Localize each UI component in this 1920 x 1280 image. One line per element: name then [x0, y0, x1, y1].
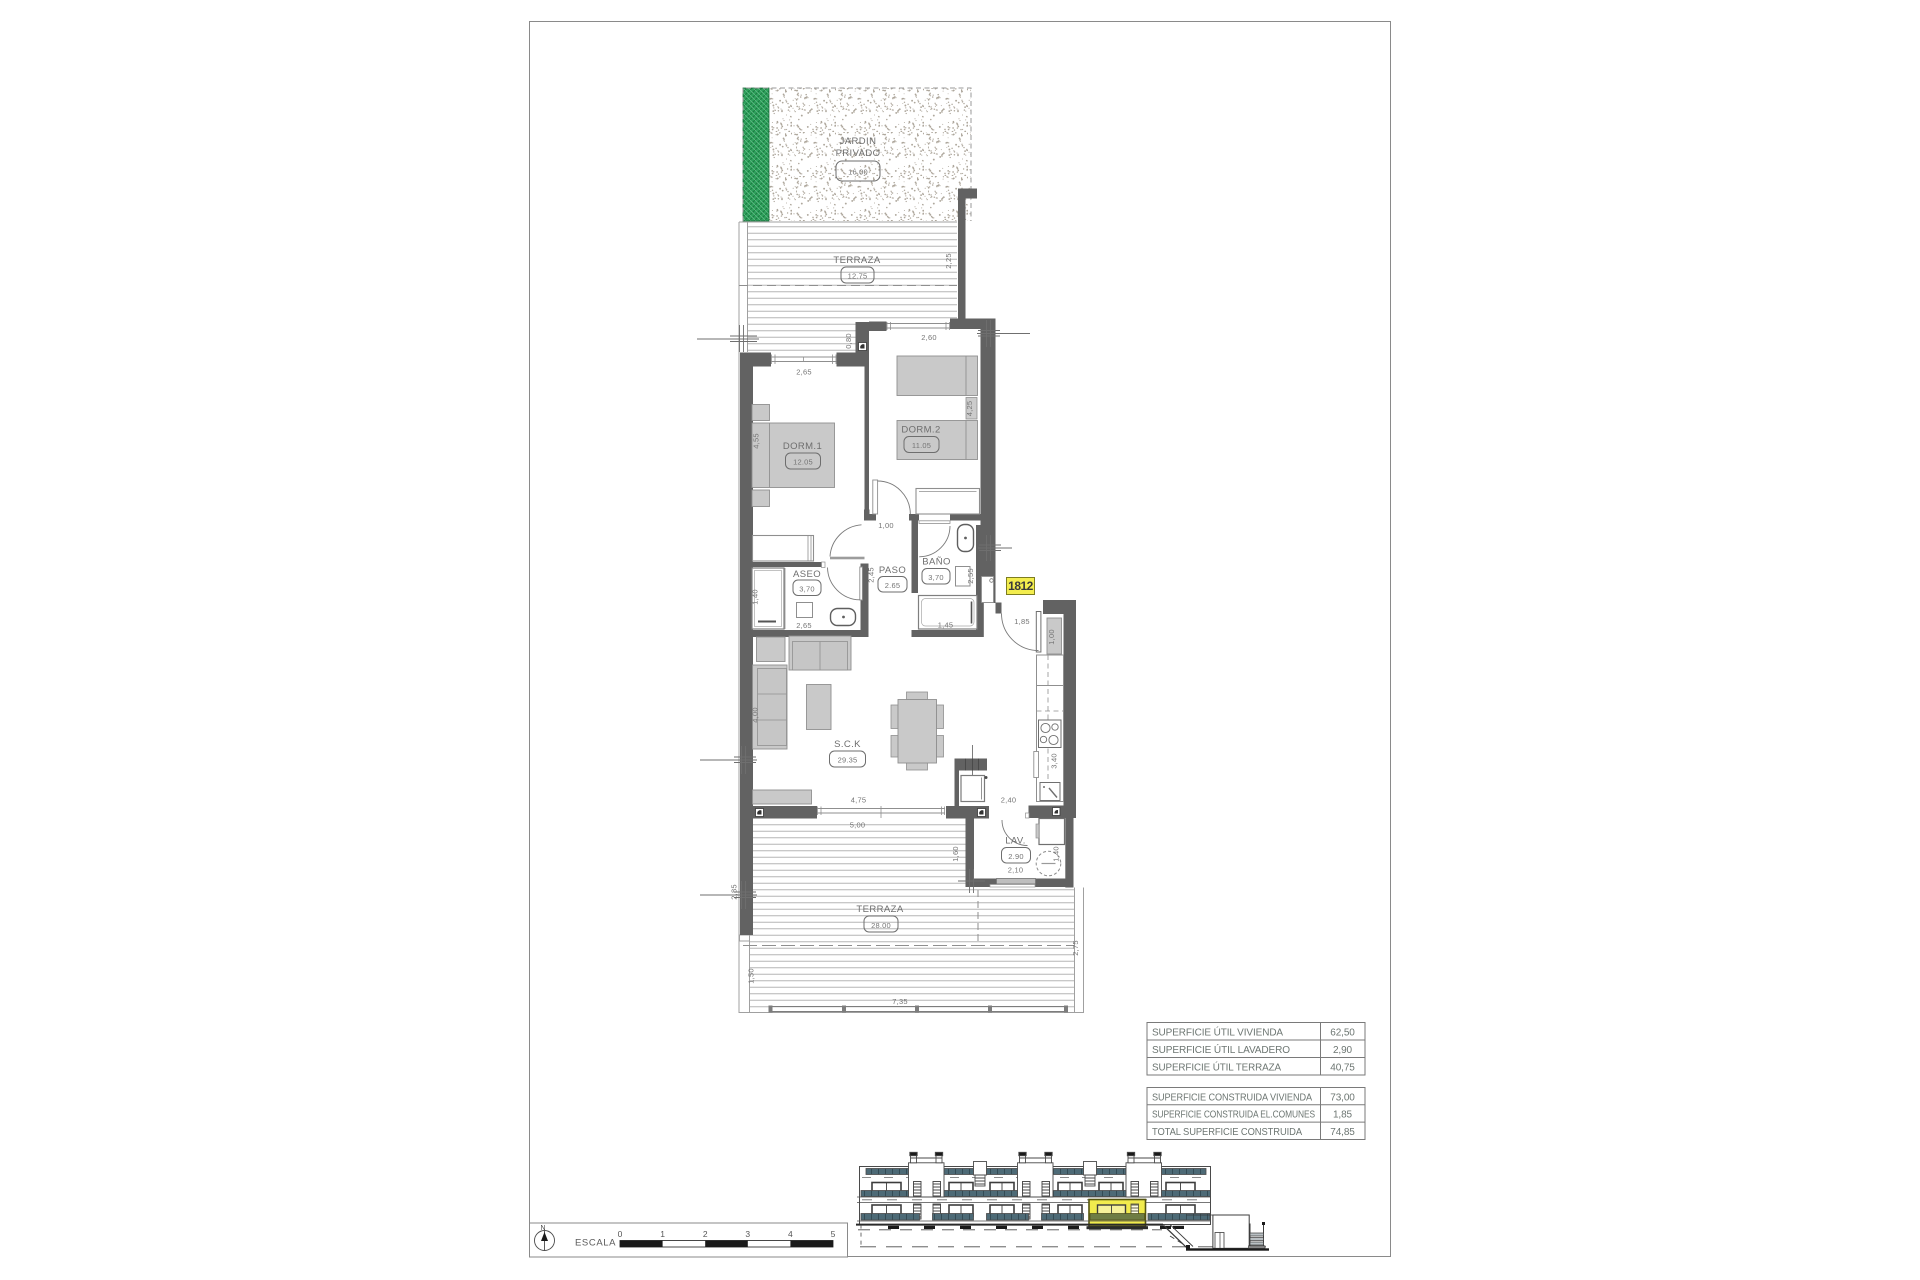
- svg-text:2,90: 2,90: [1333, 1045, 1353, 1056]
- svg-text:1,45: 1,45: [938, 621, 953, 630]
- svg-text:PRIVADO: PRIVADO: [836, 148, 881, 159]
- svg-text:2,25: 2,25: [944, 253, 953, 268]
- svg-text:3: 3: [745, 1229, 750, 1239]
- svg-text:TOTAL SUPERFICIE CONSTRUIDA: TOTAL SUPERFICIE CONSTRUIDA: [1152, 1127, 1302, 1138]
- svg-text:DORM.1: DORM.1: [783, 441, 822, 452]
- svg-text:1,85: 1,85: [1014, 617, 1029, 626]
- svg-text:2,55: 2,55: [966, 568, 975, 583]
- svg-text:SUPERFICIE ÚTIL VIVIENDA: SUPERFICIE ÚTIL VIVIENDA: [1152, 1026, 1283, 1039]
- svg-text:PASO: PASO: [879, 565, 906, 576]
- svg-text:2: 2: [703, 1229, 708, 1239]
- svg-text:4,25: 4,25: [965, 401, 974, 416]
- svg-text:1,40: 1,40: [751, 589, 760, 604]
- svg-text:28.00: 28.00: [871, 921, 891, 930]
- svg-text:1,40: 1,40: [1052, 846, 1061, 861]
- svg-text:S.C.K: S.C.K: [834, 739, 861, 750]
- svg-text:16,00: 16,00: [848, 168, 868, 177]
- svg-text:2,65: 2,65: [796, 621, 811, 630]
- svg-text:2,10: 2,10: [1008, 866, 1023, 875]
- svg-text:2,65: 2,65: [796, 368, 811, 377]
- svg-text:DORM.2: DORM.2: [901, 425, 940, 436]
- svg-text:3,40: 3,40: [1050, 753, 1059, 768]
- svg-text:SUPERFICIE ÚTIL TERRAZA: SUPERFICIE ÚTIL TERRAZA: [1152, 1061, 1281, 1074]
- svg-text:ASEO: ASEO: [793, 569, 821, 580]
- svg-text:BAÑO: BAÑO: [922, 557, 951, 568]
- svg-text:4,00: 4,00: [751, 707, 760, 722]
- svg-text:2,45: 2,45: [867, 567, 876, 582]
- svg-text:3,70: 3,70: [799, 585, 814, 594]
- svg-text:1,50: 1,50: [747, 968, 756, 983]
- svg-text:0,80: 0,80: [844, 333, 853, 348]
- svg-text:2.65: 2.65: [885, 581, 900, 590]
- svg-text:2,75: 2,75: [1071, 940, 1080, 955]
- svg-text:TERRAZA: TERRAZA: [856, 904, 903, 915]
- svg-text:JARDIN: JARDIN: [840, 136, 877, 147]
- svg-text:12.75: 12.75: [848, 272, 868, 281]
- svg-text:62,50: 62,50: [1330, 1028, 1355, 1039]
- svg-text:3,70: 3,70: [928, 573, 943, 582]
- svg-text:12.05: 12.05: [793, 458, 813, 467]
- svg-text:7,35: 7,35: [892, 997, 907, 1006]
- svg-text:2,40: 2,40: [1001, 796, 1016, 805]
- svg-text:2.90: 2.90: [1008, 852, 1023, 861]
- svg-text:40,75: 40,75: [1330, 1063, 1355, 1074]
- svg-text:73,00: 73,00: [1330, 1092, 1355, 1103]
- svg-text:1,00: 1,00: [1047, 629, 1056, 644]
- svg-text:1: 1: [660, 1229, 665, 1239]
- svg-text:1812: 1812: [1008, 579, 1034, 593]
- svg-text:N: N: [541, 1225, 546, 1232]
- svg-text:ESCALA :: ESCALA :: [575, 1238, 622, 1249]
- svg-text:SUPERFICIE ÚTIL LAVADERO: SUPERFICIE ÚTIL LAVADERO: [1152, 1043, 1290, 1056]
- svg-text:11.05: 11.05: [912, 441, 931, 450]
- svg-text:TERRAZA: TERRAZA: [833, 255, 880, 266]
- svg-text:1,00: 1,00: [878, 521, 893, 530]
- svg-text:2,60: 2,60: [921, 333, 936, 342]
- svg-text:1,60: 1,60: [951, 846, 960, 861]
- svg-text:0: 0: [618, 1229, 623, 1239]
- svg-text:5,00: 5,00: [850, 821, 865, 830]
- svg-text:4: 4: [788, 1229, 793, 1239]
- svg-text:74,85: 74,85: [1330, 1127, 1355, 1138]
- svg-text:LAV.: LAV.: [1005, 836, 1026, 847]
- svg-text:SUPERFICIE CONSTRUIDA EL.COMUN: SUPERFICIE CONSTRUIDA EL.COMUNES: [1152, 1110, 1315, 1121]
- svg-text:1,85: 1,85: [1333, 1110, 1353, 1121]
- svg-text:SUPERFICIE CONSTRUIDA VIVIENDA: SUPERFICIE CONSTRUIDA VIVIENDA: [1152, 1092, 1312, 1103]
- svg-text:29.35: 29.35: [838, 756, 858, 765]
- svg-text:4,55: 4,55: [752, 433, 761, 448]
- svg-text:5: 5: [831, 1229, 836, 1239]
- svg-text:4,75: 4,75: [851, 796, 866, 805]
